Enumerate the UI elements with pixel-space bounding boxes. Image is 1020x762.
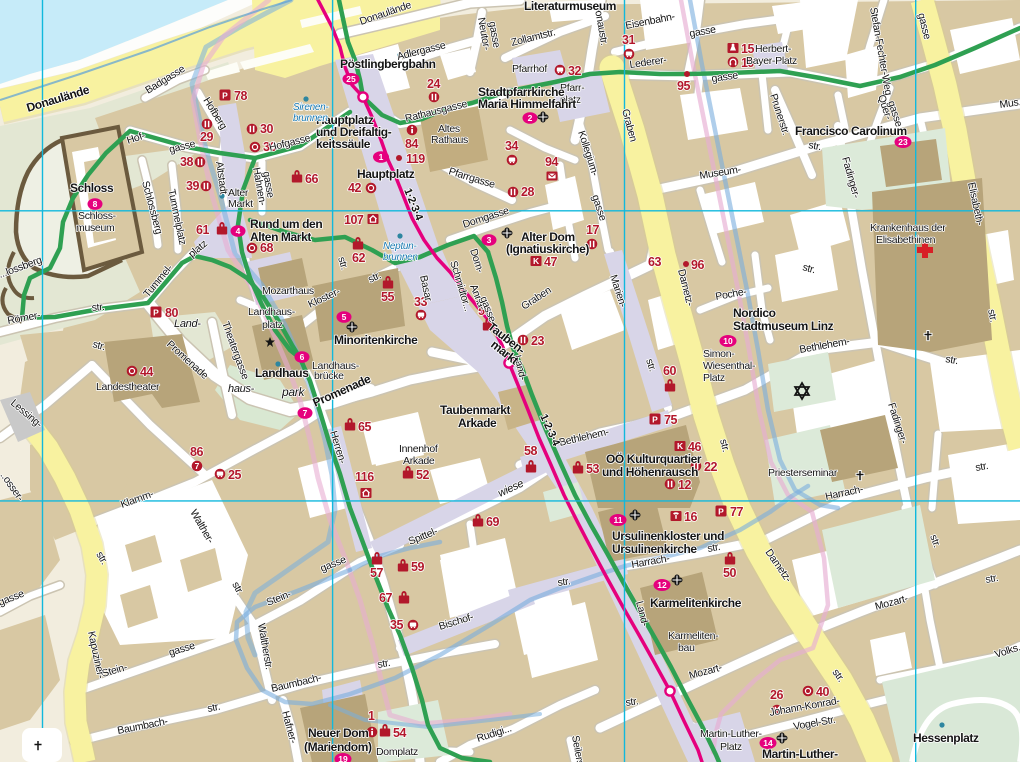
svg-text:17: 17 (586, 223, 599, 237)
svg-text:1: 1 (379, 152, 384, 162)
svg-text:28: 28 (521, 185, 534, 199)
svg-text:Landestheater: Landestheater (96, 381, 160, 393)
svg-text:25: 25 (346, 74, 356, 84)
svg-text:15: 15 (741, 42, 754, 56)
svg-text:str.: str. (944, 353, 959, 367)
svg-text:61: 61 (196, 223, 209, 237)
svg-text:39: 39 (186, 179, 199, 193)
svg-text:24: 24 (427, 77, 440, 91)
svg-text:Arkade: Arkade (403, 455, 435, 467)
svg-text:Platz: Platz (720, 741, 742, 753)
svg-text:7: 7 (303, 408, 308, 418)
svg-text:78: 78 (234, 89, 247, 103)
svg-text:und Höhenrausch: und Höhenrausch (602, 465, 698, 479)
svg-text:str.: str. (376, 657, 391, 671)
svg-text:75: 75 (664, 413, 677, 427)
svg-text:96: 96 (691, 258, 704, 272)
svg-text:11: 11 (614, 515, 623, 525)
svg-text:42: 42 (348, 181, 361, 195)
svg-text:25: 25 (228, 468, 241, 482)
svg-text:brunnen: brunnen (293, 113, 328, 124)
svg-text:62: 62 (352, 251, 365, 265)
svg-text:59: 59 (411, 560, 424, 574)
svg-text:str.: str. (974, 460, 989, 474)
svg-text:8: 8 (93, 199, 98, 209)
svg-text:94: 94 (545, 155, 558, 169)
svg-text:53: 53 (586, 462, 599, 476)
svg-text:haus-: haus- (228, 383, 255, 395)
svg-text:Hessenplatz: Hessenplatz (913, 731, 979, 745)
svg-text:Rathaus: Rathaus (431, 134, 468, 146)
svg-text:52: 52 (416, 468, 429, 482)
svg-text:Stadtmuseum Linz: Stadtmuseum Linz (733, 319, 834, 333)
svg-text:58: 58 (524, 444, 537, 458)
svg-text:str.: str. (706, 541, 721, 555)
svg-text:Rund um den: Rund um den (250, 217, 322, 231)
svg-text:22: 22 (704, 460, 717, 474)
svg-text:Karmeliten-: Karmeliten- (668, 630, 719, 642)
svg-text:Sirenen-: Sirenen- (293, 102, 329, 113)
svg-text:23: 23 (531, 334, 544, 348)
svg-text:Simon-: Simon- (703, 348, 735, 360)
svg-text:(Mariendom): (Mariendom) (304, 740, 372, 754)
svg-text:Innenhof: Innenhof (399, 443, 438, 455)
svg-text:str.: str. (91, 301, 105, 314)
svg-text:Landhaus: Landhaus (255, 366, 309, 380)
svg-text:29: 29 (200, 130, 213, 144)
svg-text:4: 4 (236, 226, 241, 236)
svg-text:54: 54 (393, 726, 406, 740)
svg-text:69: 69 (486, 515, 499, 529)
svg-text:Literaturmuseum: Literaturmuseum (524, 0, 616, 13)
svg-text:OÖ Kulturquartier: OÖ Kulturquartier (606, 451, 702, 466)
svg-text:Krankenhaus der: Krankenhaus der (870, 222, 946, 234)
svg-text:84: 84 (405, 137, 418, 151)
svg-text:116: 116 (355, 470, 374, 484)
svg-text:brücke: brücke (314, 370, 344, 382)
svg-text:str.: str. (984, 572, 999, 586)
svg-text:Markt: Markt (228, 198, 253, 210)
svg-text:keitssäule: keitssäule (316, 137, 371, 151)
svg-text:Schloss: Schloss (70, 181, 114, 195)
svg-text:Landhaus-: Landhaus- (248, 306, 296, 318)
svg-text:12: 12 (678, 478, 691, 492)
svg-text:119: 119 (406, 152, 425, 166)
svg-text:57: 57 (370, 566, 383, 580)
svg-text:34: 34 (505, 139, 518, 153)
svg-text:Ursulinenkloster und: Ursulinenkloster und (612, 529, 724, 543)
svg-text:44: 44 (140, 365, 153, 379)
svg-text:Platz: Platz (703, 372, 725, 384)
svg-text:brunnen: brunnen (383, 252, 418, 263)
svg-text:67: 67 (379, 591, 392, 605)
svg-text:Neptun-: Neptun- (383, 241, 417, 252)
svg-text:Land-: Land- (174, 318, 201, 330)
svg-text:bau: bau (678, 642, 695, 654)
svg-text:Pöstlingbergbahn: Pöstlingbergbahn (340, 57, 436, 71)
svg-text:Domplatz: Domplatz (376, 746, 418, 758)
svg-text:str.: str. (625, 695, 639, 709)
svg-text:platz: platz (262, 319, 283, 331)
svg-text:Francisco Carolinum: Francisco Carolinum (795, 124, 907, 138)
svg-text:10: 10 (723, 336, 733, 346)
svg-text:16: 16 (684, 510, 697, 524)
svg-text:Taubenmarkt: Taubenmarkt (440, 403, 510, 417)
svg-text:Nordico: Nordico (733, 306, 776, 320)
svg-text:Minoritenkirche: Minoritenkirche (334, 333, 418, 347)
svg-text:Arkade: Arkade (458, 416, 497, 430)
svg-text:35: 35 (390, 618, 403, 632)
svg-text:77: 77 (730, 505, 743, 519)
svg-text:str.: str. (807, 139, 822, 153)
svg-text:47: 47 (544, 255, 557, 269)
svg-text:66: 66 (305, 172, 318, 186)
svg-text:6: 6 (300, 352, 305, 362)
svg-text:Alten Markt: Alten Markt (250, 230, 311, 244)
svg-text:86: 86 (190, 445, 203, 459)
svg-text:23: 23 (898, 137, 908, 147)
svg-text:Wiesenthal-: Wiesenthal- (703, 360, 756, 372)
svg-text:park: park (281, 385, 305, 399)
svg-text:Mozarthaus: Mozarthaus (262, 285, 314, 297)
svg-text:Elisabethinen: Elisabethinen (876, 234, 936, 246)
svg-text:1: 1 (368, 709, 375, 723)
svg-text:38: 38 (180, 155, 193, 169)
svg-text:Martin-Luther-: Martin-Luther- (762, 747, 838, 761)
svg-text:str.: str. (557, 575, 571, 589)
svg-text:107: 107 (344, 213, 364, 227)
svg-text:50: 50 (723, 566, 736, 580)
svg-text:Martin-Luther-: Martin-Luther- (700, 728, 763, 740)
svg-text:3: 3 (487, 235, 492, 245)
svg-text:Schloss-: Schloss- (78, 210, 117, 222)
svg-text:Pfarrhof: Pfarrhof (512, 63, 547, 75)
svg-text:(Ignatiuskirche): (Ignatiuskirche) (506, 242, 589, 256)
svg-text:Hauptplatz: Hauptplatz (357, 167, 415, 181)
svg-text:Bayer-Platz: Bayer-Platz (746, 55, 797, 67)
svg-text:60: 60 (663, 364, 676, 378)
svg-text:Neuer Dom: Neuer Dom (308, 726, 368, 740)
svg-text:32: 32 (568, 64, 581, 78)
svg-text:Mus...: Mus... (999, 95, 1020, 111)
svg-text:12: 12 (657, 580, 667, 590)
svg-text:Priesterseminar: Priesterseminar (768, 467, 838, 479)
svg-text:Karmelitenkirche: Karmelitenkirche (650, 596, 742, 610)
svg-text:Herbert-: Herbert- (755, 43, 792, 55)
svg-text:95: 95 (677, 79, 690, 93)
svg-text:19: 19 (338, 754, 348, 762)
svg-text:63: 63 (648, 255, 661, 269)
svg-text:65: 65 (358, 420, 371, 434)
svg-text:31: 31 (622, 33, 635, 47)
svg-text:museum: museum (76, 222, 115, 234)
svg-text:str.: str. (206, 701, 221, 715)
svg-text:5: 5 (342, 312, 347, 322)
svg-text:Maria Himmelfahrt: Maria Himmelfahrt (478, 97, 576, 111)
svg-text:26: 26 (770, 688, 783, 702)
svg-text:2: 2 (528, 113, 533, 123)
svg-text:30: 30 (260, 122, 273, 136)
svg-text:55: 55 (381, 290, 394, 304)
